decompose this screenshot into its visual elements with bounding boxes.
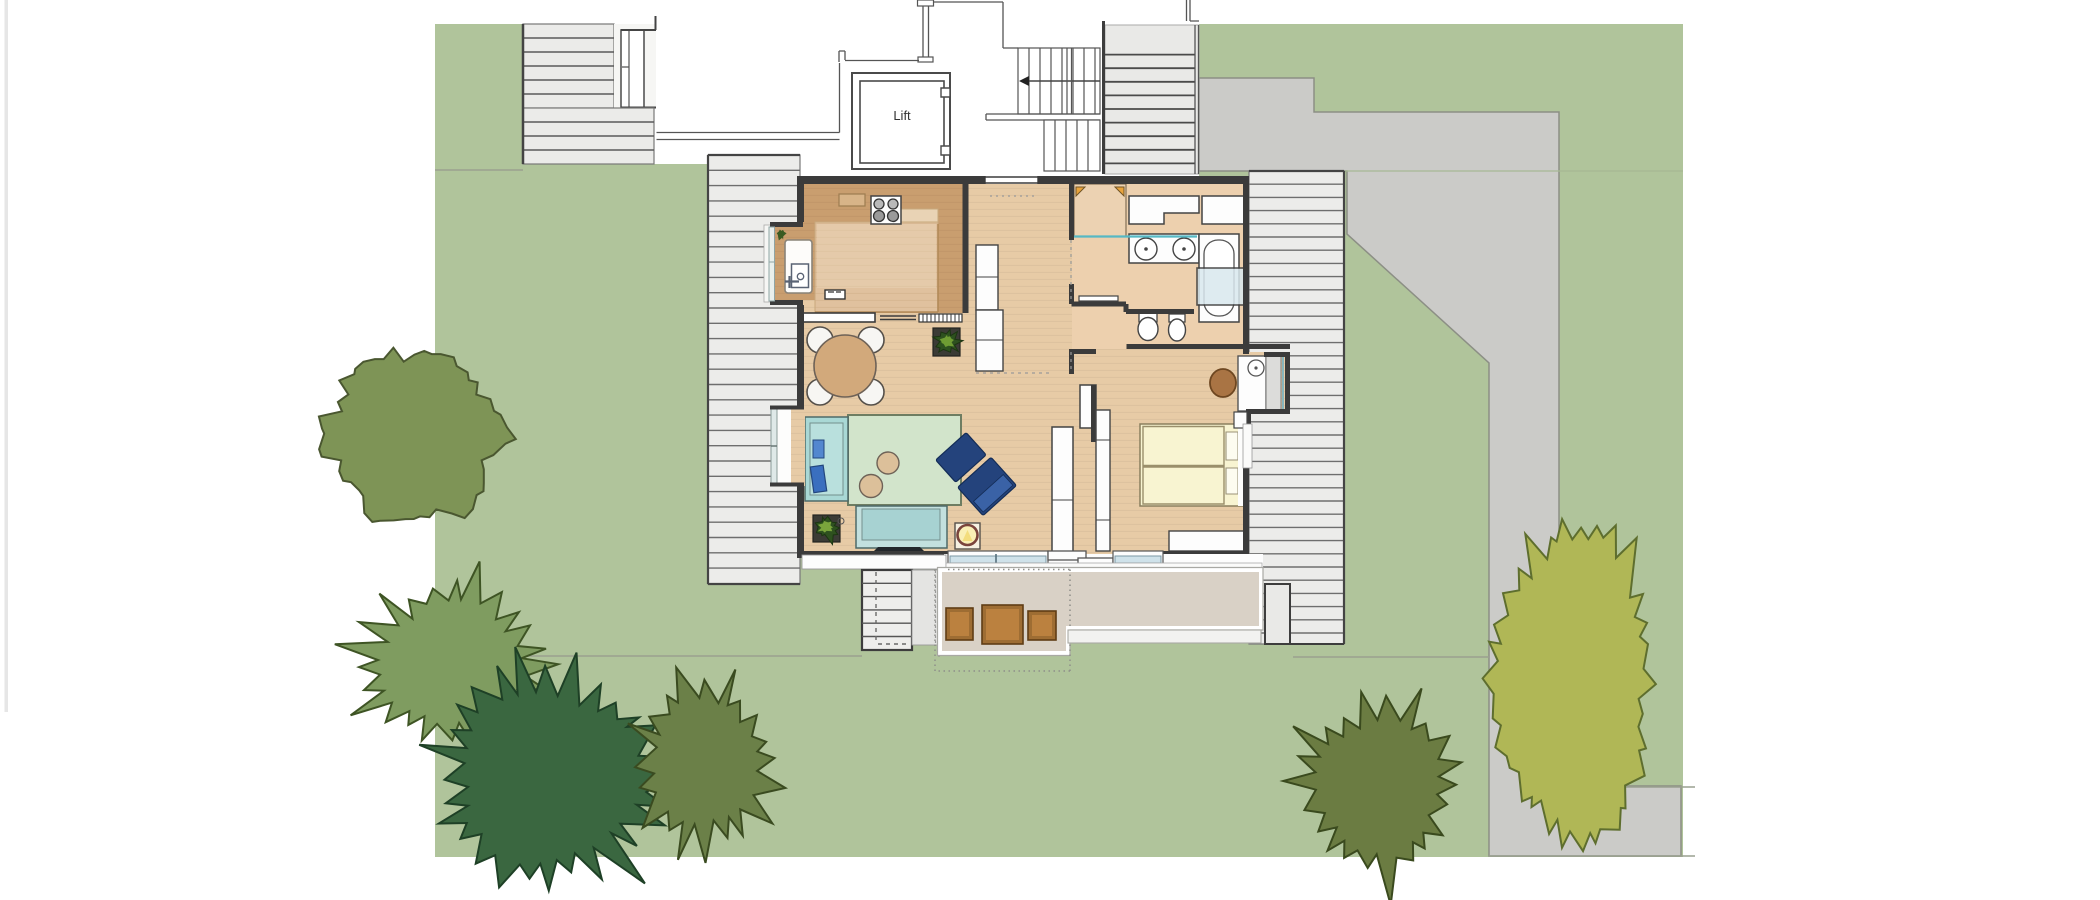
svg-text:Lift: Lift (893, 108, 911, 123)
